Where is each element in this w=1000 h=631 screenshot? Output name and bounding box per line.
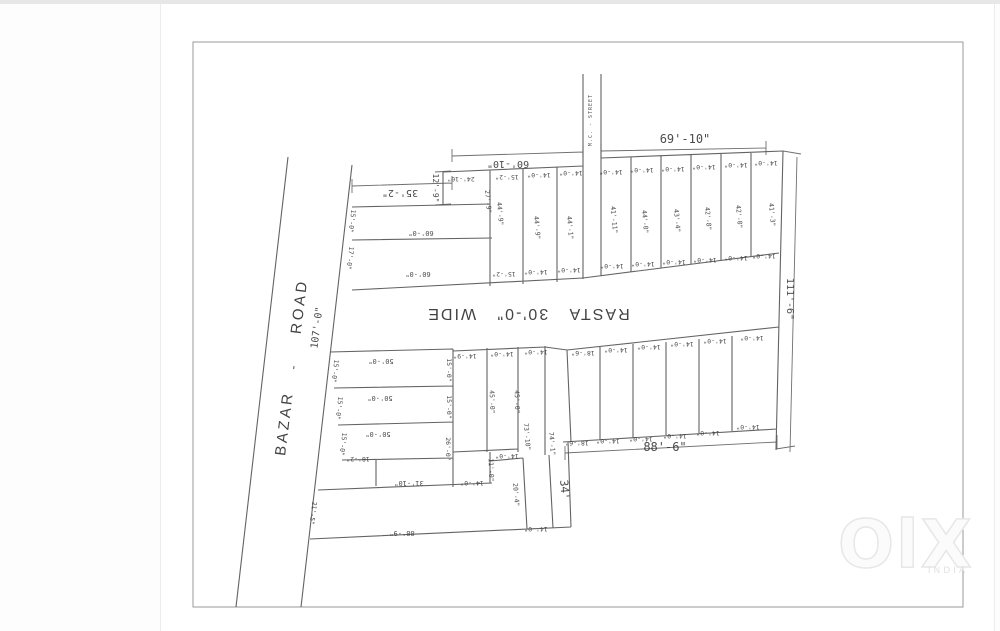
boundary-dimension-label: 111'-6" <box>784 278 795 320</box>
plot-dimension-label: 14'-9" <box>453 352 476 360</box>
plot-dimension-label: 41'-3" <box>767 203 777 227</box>
plot-dimension-label: 14'-0" <box>703 337 726 345</box>
plot-dimension-label: 15'-0" <box>445 395 453 418</box>
dimension-lines <box>352 141 801 460</box>
boundary-dimension-label: 60'-10" <box>487 158 529 169</box>
plot-dimension-label: 15'-2" <box>492 270 515 278</box>
plot-dimension-label: 24'-10" <box>447 175 474 183</box>
plot-dimension-label: 14'-0" <box>752 252 775 260</box>
plot-dimension-label: 14'-0" <box>599 168 622 176</box>
plot-dimension-label: 14'-0" <box>670 340 693 348</box>
road-name-label: 107'-0" <box>309 306 325 349</box>
plot-dimension-label: 14'-0" <box>724 161 747 169</box>
plot-dimension-label: 12'-9" <box>431 174 440 203</box>
rasta-road-label: RASTA 30'-0" WIDE <box>426 305 629 322</box>
plot-dimension-label: 15'-0" <box>334 396 345 420</box>
plot-dimension-label: 45'-0" <box>513 390 522 414</box>
plot-dimension-label: 14'-0" <box>630 166 653 174</box>
plot-dimension-label: 34' <box>557 479 572 500</box>
plot-dimension-label: 41'-11" <box>609 206 619 234</box>
plot-dimension-label: 14'-0" <box>524 525 547 533</box>
plot-dimension-label: 18'-6" <box>565 439 588 447</box>
boundary-dimension-label: 88'-9" <box>389 529 414 537</box>
plot-dimension-label: 27'-9" <box>483 190 493 214</box>
plot-dimension-label: 45'-0" <box>488 390 497 414</box>
plot-dimension-label: 44'-1" <box>565 216 575 240</box>
plot-dimension-label: 14'-0" <box>661 165 684 173</box>
plot-dimension-label: 14'-0" <box>600 262 623 270</box>
plot-dimension-label: 42'-8" <box>703 207 713 231</box>
plot-dimension-label: 14'-0" <box>559 169 582 177</box>
plot-dimension-label: 60'-0" <box>408 229 433 237</box>
plot-dimension-label: 14'-0" <box>754 159 777 167</box>
plot-dimension-label: 15'-0" <box>347 209 358 233</box>
plot-dimension-label: 14'-0" <box>557 266 580 274</box>
plot-dimension-label: 14'-0" <box>662 258 685 266</box>
plot-dimension-label: 14'-0" <box>692 163 715 171</box>
plot-dimension-label: 50'-0" <box>367 394 392 402</box>
road-name-label: ROAD <box>288 278 312 335</box>
plot-dimension-label: 44'-0" <box>640 210 650 234</box>
screenshot-root: BAZAR-ROAD107'-0"M.C. - STREETRASTA 30'-… <box>0 0 1000 631</box>
plot-dimension-label: 74'-1" <box>547 432 557 456</box>
plot-dimension-label: 15'-0" <box>338 432 349 456</box>
plot-dimension-label: 20'-4" <box>511 483 521 507</box>
plot-dimension-label: 26'-0" <box>444 437 452 460</box>
plot-dimension-label: 11'-0" <box>487 458 496 482</box>
plot-dimension-label: 14'-0" <box>736 423 759 431</box>
plot-dimension-label: 43'-4" <box>672 209 682 233</box>
plot-dimension-label: 50'-0" <box>365 430 390 438</box>
plot-dimension-label: 14'-0" <box>696 429 719 437</box>
plan-labels: BAZAR-ROAD107'-0"M.C. - STREETRASTA 30'-… <box>272 94 795 537</box>
site-plan-drawing: BAZAR-ROAD107'-0"M.C. - STREETRASTA 30'-… <box>0 0 1000 631</box>
boundary-dimension-label: 69'-10" <box>660 132 711 146</box>
plot-dimension-label: 44'-9" <box>532 216 542 240</box>
plot-dimension-label: 14'-0" <box>724 254 747 262</box>
plot-dimension-label: 42'-0" <box>734 205 744 229</box>
plot-dimension-label: 50'-0" <box>368 357 393 365</box>
plot-dimension-label: 60'-0" <box>405 270 430 278</box>
plot-dimension-label: 15'-0" <box>445 358 453 381</box>
plot-dimension-label: 18'-2" <box>346 455 369 463</box>
plot-dimension-label: 18'-6" <box>571 349 594 357</box>
plot-dimension-label: 14'-0" <box>460 479 483 487</box>
plot-dimension-label: 14'-0" <box>604 346 627 354</box>
road-name-label: - <box>286 365 300 371</box>
boundary-dimension-label: 35'-2" <box>382 187 418 198</box>
street-name-label: M.C. - STREET <box>588 94 594 146</box>
plot-dimension-label: 14'-0" <box>495 452 518 460</box>
plot-dimension-label: 14'-0" <box>596 437 619 445</box>
plot-dimension-label: 14'-0" <box>631 260 654 268</box>
plot-dimension-label: 15'-0" <box>330 359 341 383</box>
plot-dimension-label: 14'-0" <box>629 435 652 443</box>
plot-dimension-label: 14'-0" <box>524 268 547 276</box>
plot-dimension-label: 14'-0" <box>693 256 716 264</box>
plot-dimension-label: 14'-0" <box>524 348 547 356</box>
plot-dimension-label: 15'-2" <box>495 173 518 181</box>
road-name-label: BAZAR <box>272 390 297 457</box>
plot-dimension-label: 14'-0" <box>663 432 686 440</box>
plot-dimension-label: 17'-0" <box>345 246 356 270</box>
plot-dimension-label: 44'-9" <box>495 202 505 226</box>
plot-dimension-label: 73'-10" <box>522 423 532 451</box>
plot-dimension-label: 14'-0" <box>490 350 513 358</box>
plot-dimension-label: 14'-0" <box>637 343 660 351</box>
plot-dimension-label: 21'-5" <box>308 501 319 525</box>
plot-dimension-label: 31'-10" <box>394 479 424 487</box>
plot-dimension-label: 14'-0" <box>740 334 763 342</box>
plot-dimension-label: 14'-0" <box>527 171 550 179</box>
